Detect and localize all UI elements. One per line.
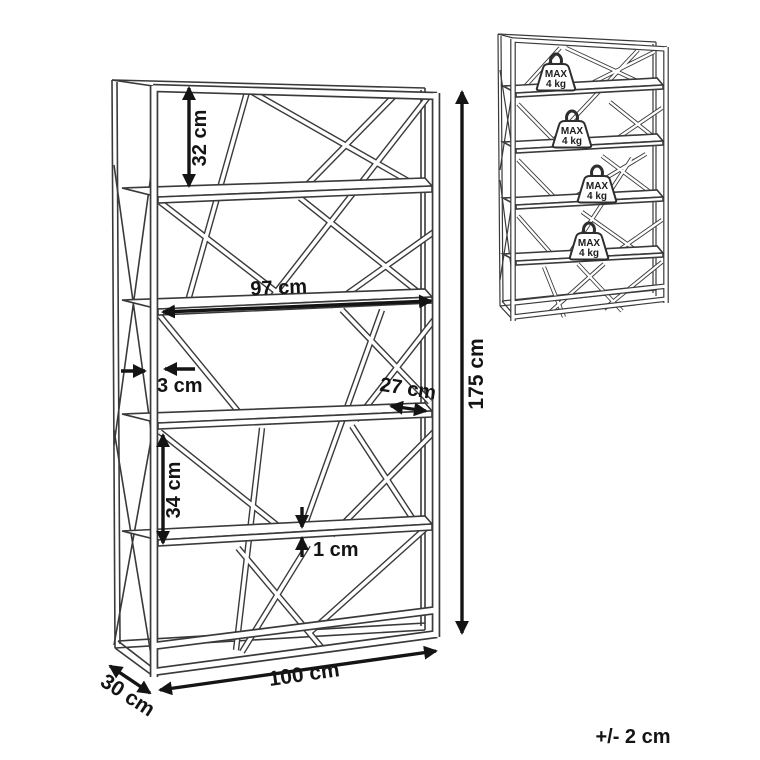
max-load-weight: MAX 4 kg — [553, 111, 591, 148]
weight-load-label: 4 kg — [546, 79, 566, 90]
dim-label-27cm: 27 cm — [378, 374, 437, 405]
weight-load-label: 4 kg — [579, 248, 599, 259]
dim-label-100cm: 100 cm — [267, 658, 341, 691]
weight-load-label: 4 kg — [562, 136, 582, 147]
diagonal-struts — [160, 92, 434, 652]
dimension-3cm: 3 cm — [121, 369, 203, 397]
product-dimension-drawing: 32 cm 97 cm 3 cm 27 cm 34 cm 1 cm 175 cm — [0, 0, 760, 760]
weight-load-label: 4 kg — [587, 191, 607, 202]
dim-label-3cm: 3 cm — [157, 375, 203, 397]
dimension-32cm: 32 cm — [189, 88, 211, 186]
dim-label-1cm: 1 cm — [313, 539, 359, 561]
dim-label-97cm: 97 cm — [250, 276, 308, 300]
load-unit-drawing: MAX 4 kg MAX 4 kg MAX 4 kg MAX 4 kg — [498, 34, 667, 321]
dim-label-34cm: 34 cm — [163, 462, 185, 519]
dim-label-175cm: 175 cm — [465, 338, 488, 409]
product-dimension-page: 32 cm 97 cm 3 cm 27 cm 34 cm 1 cm 175 cm — [0, 0, 760, 760]
max-load-weight: MAX 4 kg — [537, 54, 575, 91]
max-load-weight: MAX 4 kg — [578, 166, 616, 203]
dim-label-32cm: 32 cm — [189, 110, 211, 167]
main-unit-drawing: 32 cm 97 cm 3 cm 27 cm 34 cm 1 cm 175 cm — [96, 80, 488, 721]
tolerance-note: +/- 2 cm — [595, 726, 670, 748]
dimension-175cm: 175 cm — [462, 92, 488, 633]
dimension-100cm: 100 cm — [160, 651, 436, 691]
